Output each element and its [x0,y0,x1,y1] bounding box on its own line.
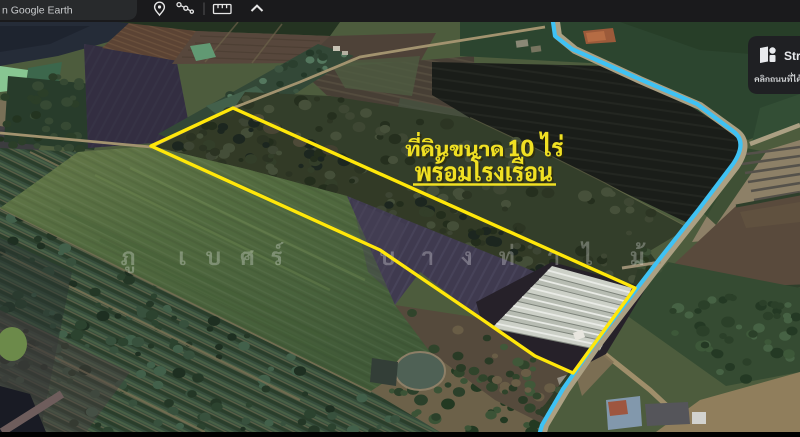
svg-text:n Google Earth: n Google Earth [2,5,73,17]
svg-text:Stre: Stre [784,49,800,63]
